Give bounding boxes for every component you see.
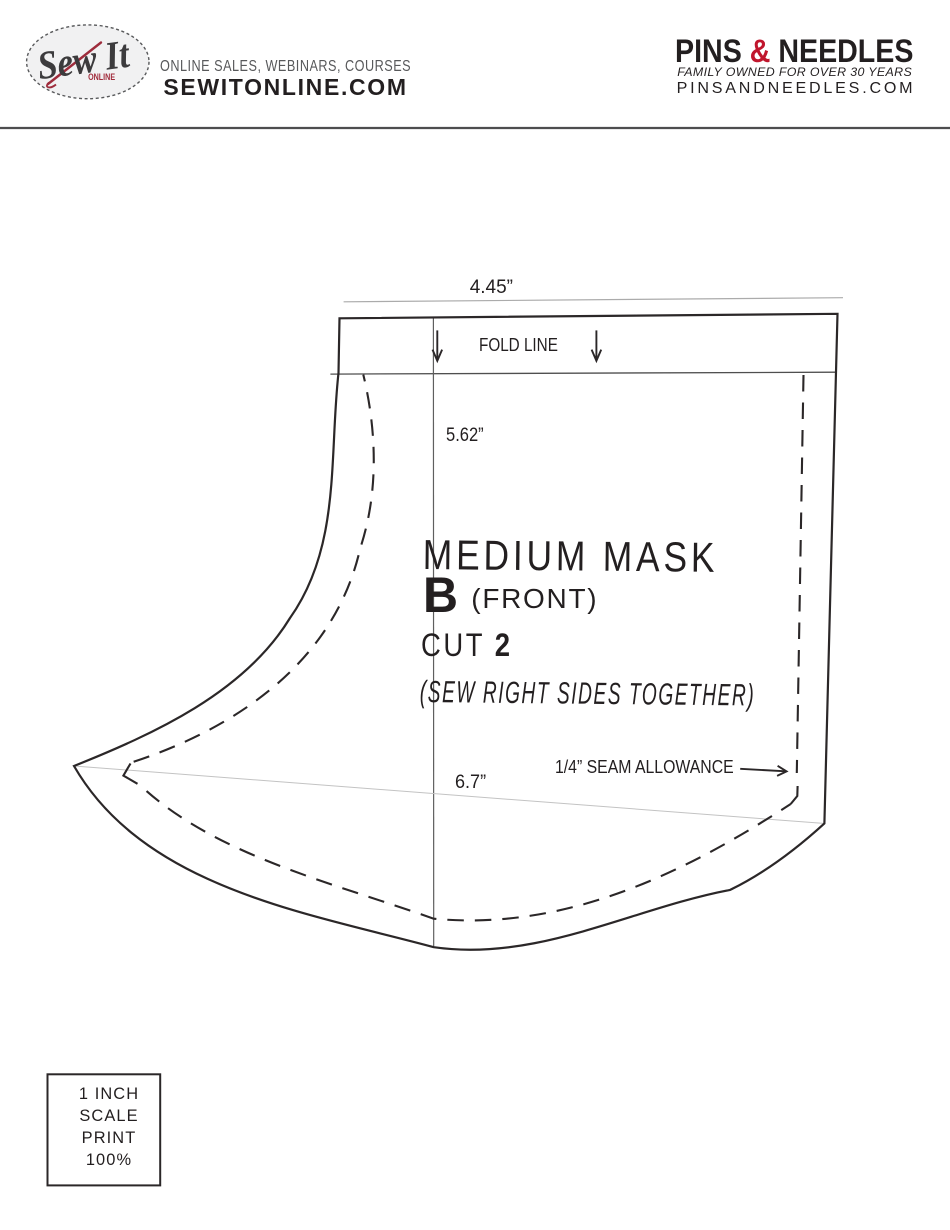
svg-text:ONLINE: ONLINE [88, 72, 115, 82]
